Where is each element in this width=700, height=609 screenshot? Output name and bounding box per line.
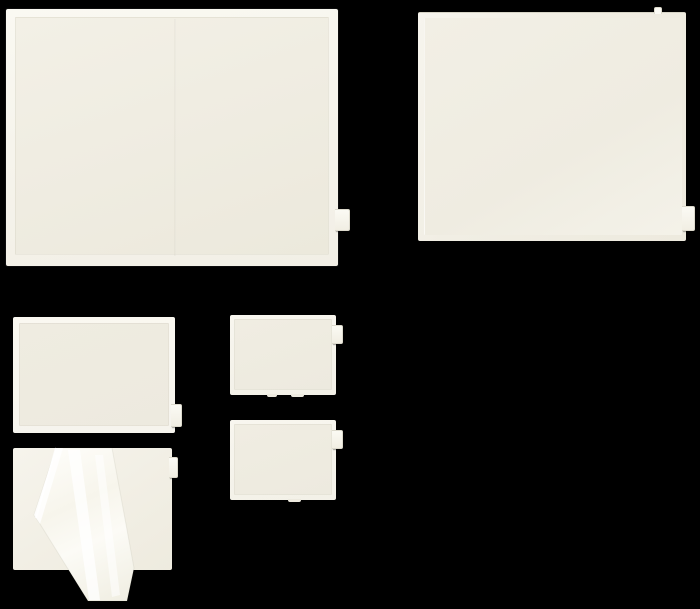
envelope-xl-top-left: [6, 9, 338, 266]
envelope-sm-lower: [230, 420, 336, 500]
envelope-face: [234, 319, 332, 390]
liner-notch: [267, 394, 277, 397]
liner-notch: [291, 394, 304, 397]
envelope-sm-upper: [230, 315, 336, 395]
product-photo-canvas: [0, 0, 700, 609]
pull-tab: [332, 430, 343, 449]
pull-tab: [171, 404, 182, 427]
envelope-face: [19, 323, 169, 426]
envelope-face: [15, 17, 329, 255]
liner-notch: [654, 7, 662, 14]
envelope-face: [424, 18, 682, 235]
pull-tab: [335, 209, 350, 231]
envelope-md-mid-left: [13, 317, 175, 433]
liner-notch: [288, 499, 301, 502]
envelope-crease: [174, 19, 176, 255]
envelope-lg-top-right: [418, 12, 686, 241]
pull-tab: [169, 457, 178, 478]
envelope-face: [234, 424, 332, 495]
release-liner-film: [25, 443, 145, 608]
pull-tab: [682, 206, 695, 231]
pull-tab: [332, 325, 343, 344]
